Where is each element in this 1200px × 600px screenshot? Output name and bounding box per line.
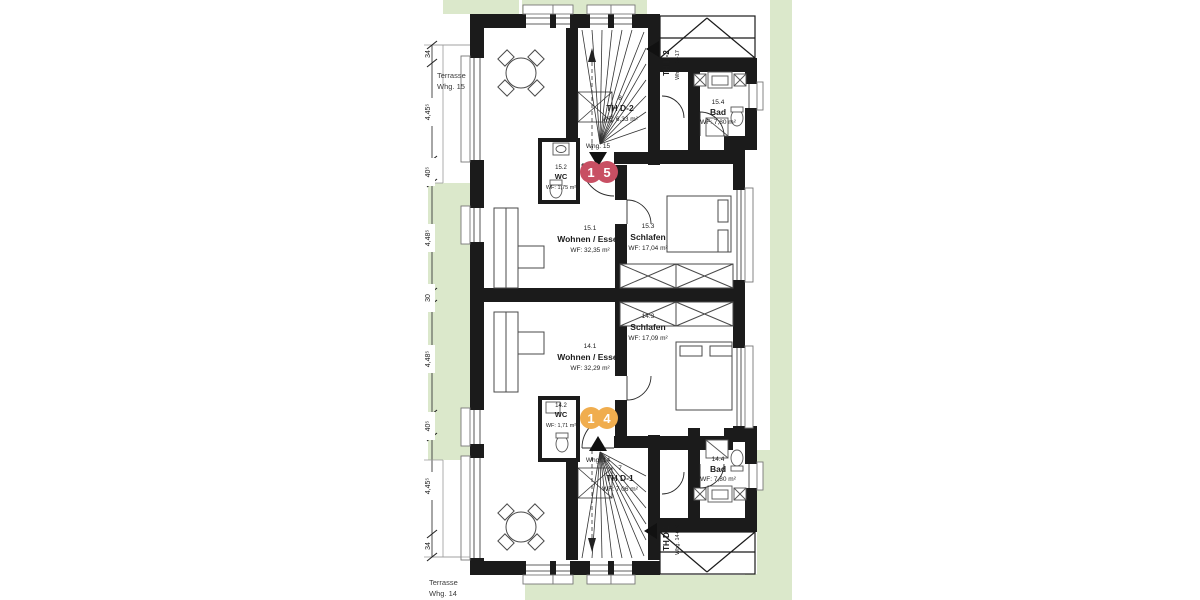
terrace-label-whg14: Terrasse Whg. 14: [429, 578, 458, 598]
bed-schlafen-14-3: [676, 342, 732, 410]
svg-text:14.3: 14.3: [642, 313, 655, 320]
svg-text:8: 8: [618, 95, 622, 102]
dim-label: 30: [425, 294, 432, 302]
svg-text:WF: 7,80 m²: WF: 7,80 m²: [700, 476, 737, 483]
svg-text:14.2: 14.2: [555, 403, 567, 409]
svg-text:Whg. 15+17: Whg. 15+17: [675, 50, 681, 80]
svg-text:TH D-2: TH D-2: [606, 103, 634, 113]
svg-text:Whg. 14: Whg. 14: [586, 457, 611, 464]
svg-text:WC: WC: [555, 172, 568, 181]
svg-text:TH D-2: TH D-2: [662, 50, 671, 76]
dim-label: 40⁵: [425, 421, 432, 432]
svg-text:WF: 17,04 m²: WF: 17,04 m²: [628, 245, 668, 252]
svg-text:14.1: 14.1: [584, 343, 597, 350]
svg-text:Whg. 15: Whg. 15: [586, 143, 611, 150]
svg-text:WF: 1,75 m²: WF: 1,75 m²: [546, 185, 576, 191]
svg-text:Bad: Bad: [710, 464, 726, 474]
dim-label: 4,48⁵: [425, 230, 432, 247]
dim-label: 40⁵: [425, 167, 432, 178]
svg-text:Whg. 14: Whg. 14: [429, 589, 457, 598]
dim-label: 4,45⁵: [425, 478, 432, 495]
svg-text:WF: 32,29 m²: WF: 32,29 m²: [570, 365, 610, 372]
svg-text:Bad: Bad: [710, 107, 726, 117]
svg-text:Wohnen / Essen: Wohnen / Essen: [557, 352, 623, 362]
svg-text:WF: 32,35 m²: WF: 32,35 m²: [570, 247, 610, 254]
svg-text:1: 1: [587, 165, 594, 180]
svg-text:WC: WC: [555, 410, 568, 419]
svg-text:5: 5: [603, 165, 610, 180]
svg-text:Terrasse: Terrasse: [429, 578, 458, 587]
dim-label: 34: [425, 542, 432, 550]
svg-text:TH D-1: TH D-1: [606, 473, 634, 483]
svg-text:Schlafen: Schlafen: [630, 232, 665, 242]
svg-text:14.4: 14.4: [712, 456, 725, 463]
dim-label: 4,45⁵: [425, 104, 432, 121]
plot-divider-line: [519, 0, 522, 14]
svg-text:4: 4: [603, 411, 611, 426]
svg-text:7: 7: [618, 465, 622, 472]
svg-text:15.1: 15.1: [584, 225, 597, 232]
svg-text:WF: 1,71 m²: WF: 1,71 m²: [546, 423, 576, 429]
svg-text:WF: 7,06 m²: WF: 7,06 m²: [602, 486, 639, 493]
svg-text:WF: 7,80 m²: WF: 7,80 m²: [700, 119, 737, 126]
dim-label: 34: [425, 50, 432, 58]
bed-schlafen-15-3: [667, 196, 731, 252]
svg-text:WF: 6,33 m²: WF: 6,33 m²: [602, 116, 639, 123]
svg-text:Whg. 14+16: Whg. 14+16: [675, 525, 681, 555]
svg-text:15.2: 15.2: [555, 165, 567, 171]
floor-plan-canvas: 34 4,45⁵ 40⁵ 4,48⁵ 30 4,48⁵ 40⁵ 4,45⁵ 34…: [0, 0, 1200, 600]
svg-text:Wohnen / Essen: Wohnen / Essen: [557, 234, 623, 244]
svg-text:15.3: 15.3: [642, 223, 655, 230]
svg-text:TH D-1: TH D-1: [662, 525, 671, 551]
svg-text:15.4: 15.4: [712, 99, 725, 106]
svg-text:Whg. 15: Whg. 15: [437, 82, 465, 91]
plot-divider-line-2: [647, 0, 650, 14]
svg-text:WF: 17,09 m²: WF: 17,09 m²: [628, 335, 668, 342]
dim-label: 4,48⁵: [425, 351, 432, 368]
svg-text:1: 1: [587, 411, 594, 426]
svg-text:Schlafen: Schlafen: [630, 322, 665, 332]
svg-text:Terrasse: Terrasse: [437, 71, 466, 80]
